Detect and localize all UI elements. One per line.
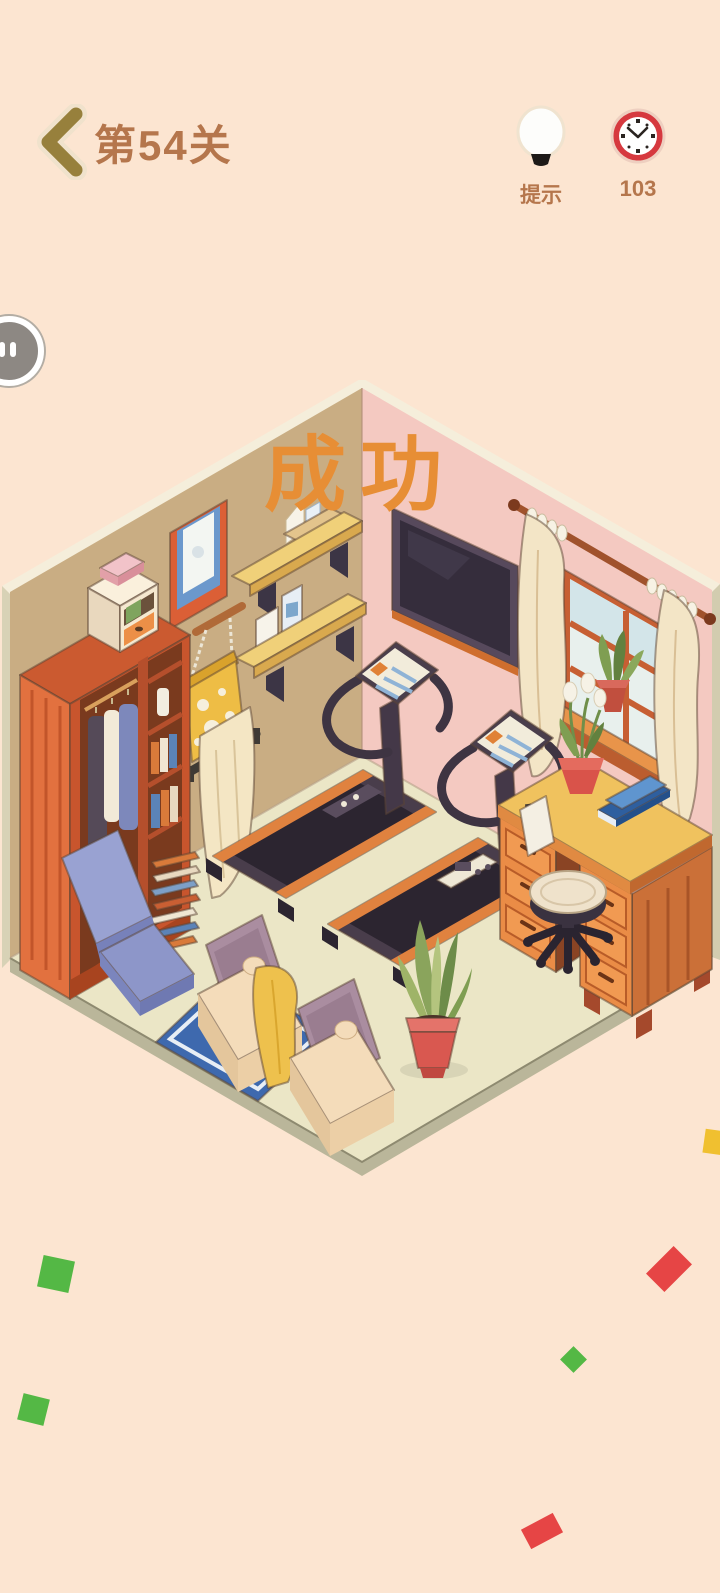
level-title: 第54关 — [94, 112, 233, 173]
confetti-piece — [17, 1393, 50, 1426]
hint-button[interactable]: 提示 — [509, 104, 573, 198]
timer-value: 103 — [606, 176, 670, 202]
lightbulb-icon — [509, 104, 573, 172]
confetti-piece — [37, 1255, 75, 1293]
confetti-piece — [702, 1129, 720, 1156]
back-button[interactable] — [34, 104, 90, 180]
clock-icon — [606, 106, 670, 170]
timer: 103 — [606, 106, 670, 198]
confetti-piece — [646, 1246, 692, 1292]
pause-icon — [0, 342, 5, 357]
header: 第54关 提示 103 — [0, 0, 720, 210]
success-banner: 成功 — [0, 408, 720, 527]
game-screen: { "header": { "level_title": "第54关", "hi… — [0, 0, 720, 1593]
pause-button[interactable] — [0, 316, 44, 386]
back-chevron-icon — [34, 104, 90, 180]
confetti-piece — [521, 1513, 563, 1549]
hint-label: 提示 — [509, 179, 573, 209]
confetti-piece — [560, 1346, 587, 1373]
